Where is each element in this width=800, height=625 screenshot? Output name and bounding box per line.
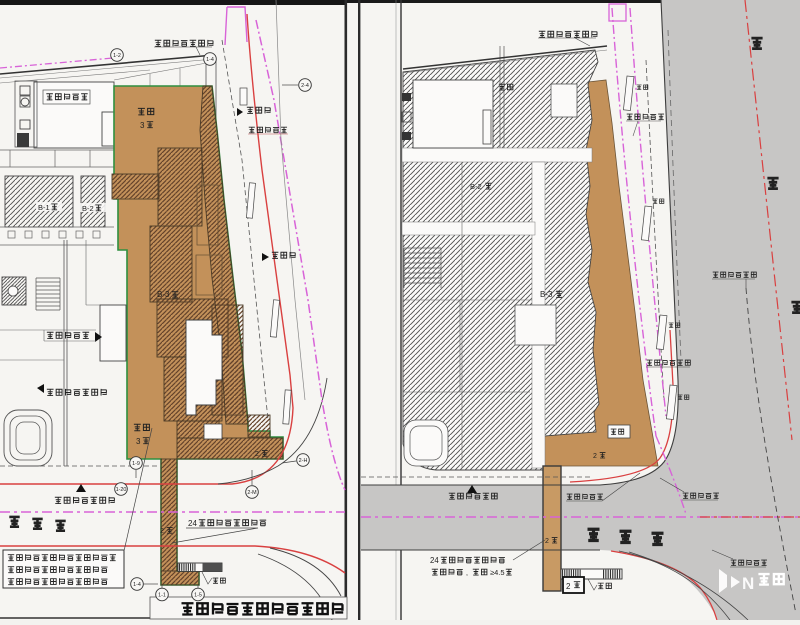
svg-text:1-1: 1-1 (158, 593, 166, 599)
svg-text:B-2: B-2 (470, 182, 482, 191)
svg-text:2-M: 2-M (247, 490, 257, 496)
svg-text:1-9: 1-9 (132, 461, 140, 467)
svg-text:B-3: B-3 (157, 290, 170, 299)
svg-text:2: 2 (593, 453, 597, 460)
svg-text:1-5: 1-5 (194, 593, 202, 599)
svg-text:B-1: B-1 (38, 203, 50, 212)
svg-text:3: 3 (140, 121, 145, 130)
svg-text:≥4.5: ≥4.5 (490, 568, 505, 577)
svg-text:1-4: 1-4 (206, 57, 214, 63)
svg-text:2: 2 (545, 538, 549, 545)
svg-text:1-2: 1-2 (113, 53, 121, 59)
svg-text:1-20: 1-20 (116, 487, 127, 493)
svg-text:24: 24 (430, 556, 439, 565)
svg-text:1-4: 1-4 (133, 582, 141, 588)
svg-text:24: 24 (188, 519, 197, 528)
svg-text:N: N (742, 574, 754, 593)
svg-text:2: 2 (160, 528, 164, 535)
svg-text:3: 3 (136, 437, 141, 446)
svg-text:B-2: B-2 (82, 204, 94, 213)
svg-text:,: , (466, 570, 468, 577)
svg-text:2: 2 (566, 582, 571, 591)
svg-text:B-3: B-3 (540, 290, 553, 299)
svg-text:2-H: 2-H (299, 458, 308, 464)
svg-text:2-4: 2-4 (301, 83, 309, 89)
svg-text:2: 2 (255, 451, 259, 458)
